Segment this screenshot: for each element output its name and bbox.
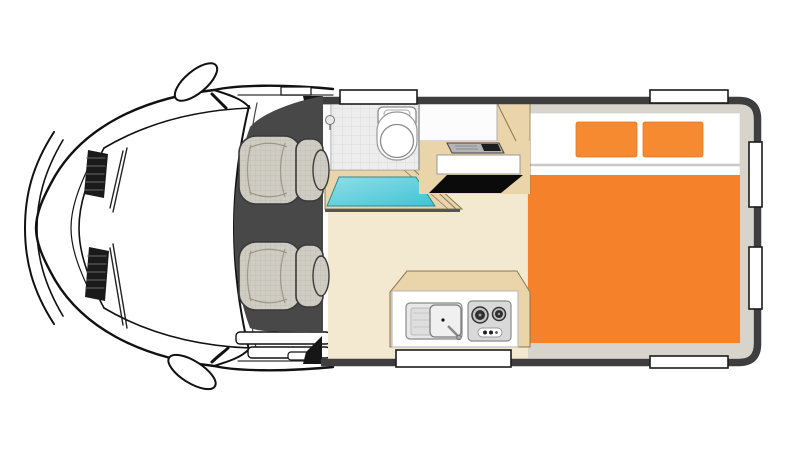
bathroom	[321, 104, 419, 170]
entry-door-bottom	[396, 350, 511, 367]
window-right-1	[749, 142, 762, 207]
floorplan-canvas	[0, 0, 800, 450]
rear-kitchen-block	[390, 271, 530, 347]
bed-pillow-left	[576, 122, 637, 157]
living-area	[321, 90, 762, 368]
window-right-2	[749, 247, 762, 309]
cab-seat-driver	[239, 136, 329, 204]
shower-tray	[327, 177, 435, 206]
sink-basin	[430, 305, 461, 337]
sink-drain	[441, 318, 444, 321]
counter-front-face	[437, 155, 520, 174]
cooktop-console	[447, 143, 504, 153]
window-top-1	[340, 90, 417, 104]
headrest	[313, 150, 329, 190]
bed-mattress	[528, 175, 740, 343]
bed-module	[528, 104, 754, 359]
window-bottom-2	[650, 356, 728, 368]
hood-vent-lower	[85, 247, 109, 301]
window-top-2	[650, 90, 728, 103]
stove-unit	[468, 301, 511, 341]
headrest	[313, 256, 329, 296]
overhead-cabinet	[419, 103, 497, 141]
campervan-floorplan	[0, 0, 800, 450]
faucet-head	[457, 335, 461, 339]
mid-galley-unit	[419, 103, 530, 194]
roof-accessory	[281, 87, 311, 95]
toilet-bowl	[381, 125, 414, 158]
sink-unit	[406, 303, 462, 340]
hood-vent-upper	[84, 150, 108, 198]
bed-pillow-right	[643, 122, 703, 157]
cab-seat-passenger	[239, 242, 329, 310]
toilet	[377, 107, 417, 160]
